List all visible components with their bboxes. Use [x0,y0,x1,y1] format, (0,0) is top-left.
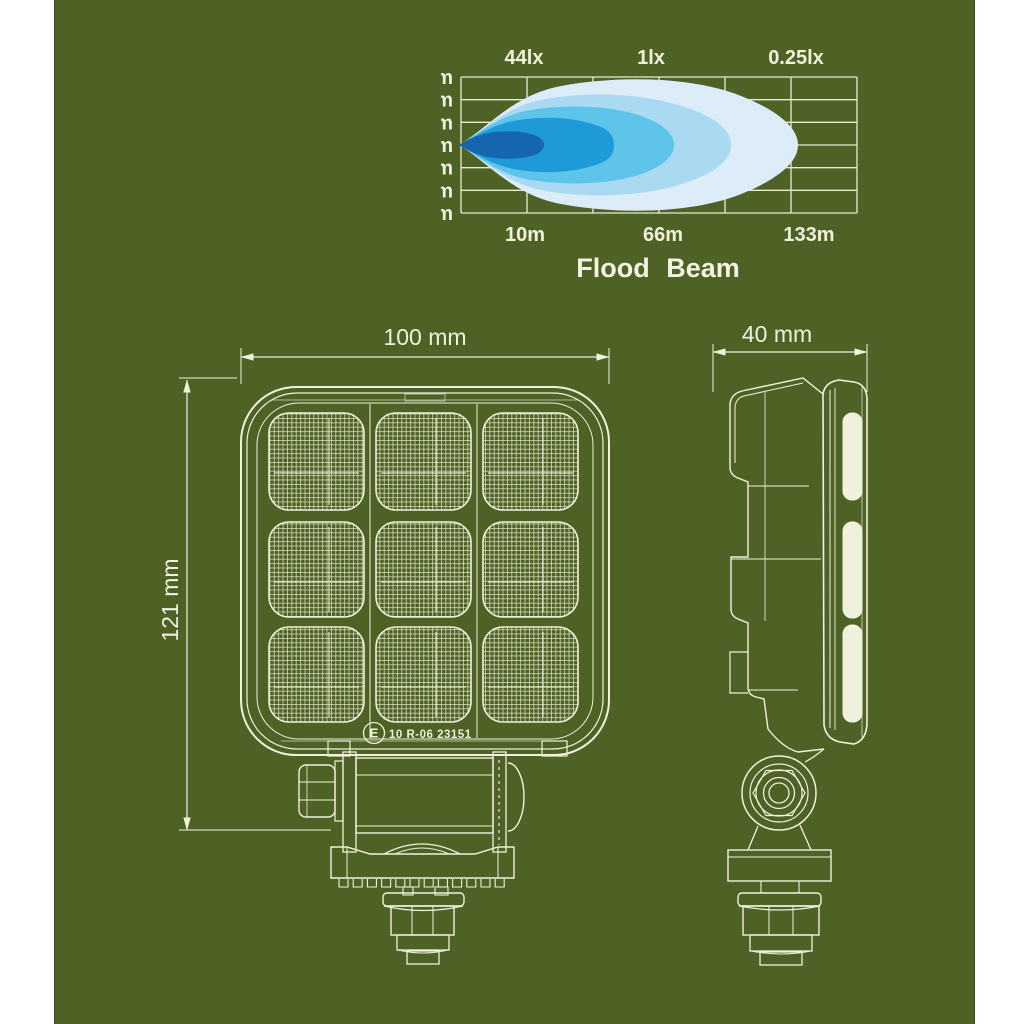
height-label-4: -10m [441,158,453,180]
ece-circle-letter: E [370,726,379,741]
lens-cell [376,627,471,722]
lens-edge-segment [843,413,862,500]
side-depth-label: 40 mm [742,321,812,347]
lux-label-0: 44lx [505,47,544,69]
flood-beam-chart: 44lx 1lx 0.25lx 30m 20m 10m 0m -10m -20m… [441,40,881,290]
height-label-6: -30m [441,203,453,225]
stem-side [738,881,821,965]
page-root: 44lx 1lx 0.25lx 30m 20m 10m 0m -10m -20m… [0,0,1024,1024]
height-label-2: 10m [441,112,453,134]
width-dimension: 100 mm [241,324,609,384]
front-width-label: 100 mm [383,324,466,350]
lens-cell [269,413,364,510]
lens-cell [269,627,364,722]
lens-cell [483,522,578,617]
lens-cell [376,413,471,510]
lens-edge-segments [843,413,862,722]
lens-edge-segment [843,625,862,722]
lens-grid [269,413,578,722]
ece-approval-text: 10 R-06 23151 [389,729,472,741]
lens-cell [483,627,578,722]
bracket-base [331,844,514,887]
lens-cell [376,522,471,617]
mounting-bracket-front [299,741,567,964]
left-margin [0,0,54,1024]
chart-title: Flood Beam [576,253,740,283]
lux-label-2: 0.25lx [768,47,824,69]
distance-label-2: 133m [783,224,834,246]
front-height-label: 121 mm [157,558,183,641]
lux-label-1: 1lx [637,47,665,69]
base-teeth [339,879,504,887]
lens-cell [269,522,364,617]
distance-label-1: 66m [643,224,683,246]
height-label-5: -20m [441,180,453,202]
housing-body-profile [730,378,824,752]
distance-label-0: 10m [505,224,545,246]
diagram-panel: 44lx 1lx 0.25lx 30m 20m 10m 0m -10m -20m… [54,0,975,1024]
beam-contour-core [459,131,544,159]
beam-contours [459,79,798,211]
height-label-1: 20m [441,90,453,112]
mounting-bracket-side [728,756,831,965]
front-view-drawing: 100 mm 121 mm [151,310,651,1010]
ece-approval-mark: E 10 R-06 23151 [364,723,472,744]
lamp-housing-side [730,378,867,762]
height-label-3: 0m [441,135,453,157]
lens-cell [483,413,578,510]
lens-edge-segment [843,522,862,618]
height-label-0: 30m [441,67,453,89]
right-margin [975,0,1024,1024]
side-view-drawing: 40 mm [691,310,921,1010]
pivot-bolt [299,761,343,821]
pivot-knob [742,756,816,830]
stem-front [383,887,464,964]
